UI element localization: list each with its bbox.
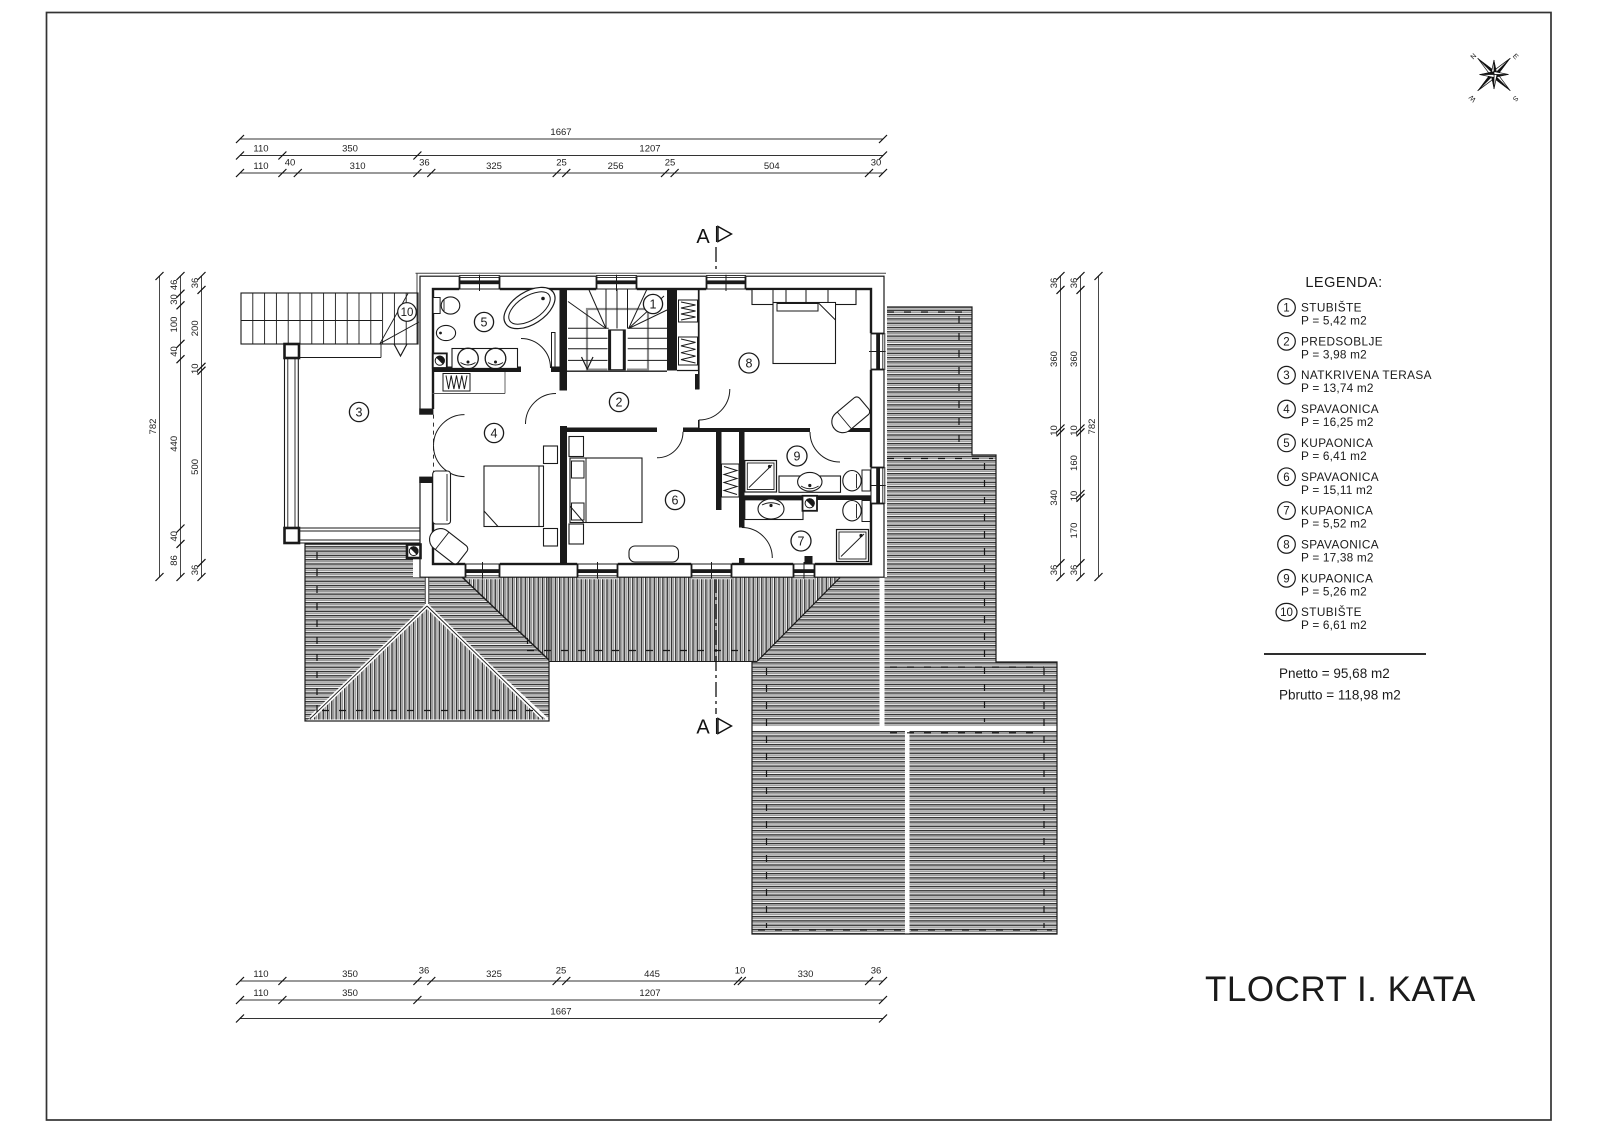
svg-text:P = 15,11 m2: P = 15,11 m2: [1301, 483, 1373, 497]
svg-text:325: 325: [486, 969, 502, 980]
svg-text:25: 25: [665, 158, 676, 169]
svg-text:360: 360: [1049, 351, 1060, 367]
svg-text:504: 504: [764, 161, 780, 172]
svg-text:STUBIŠTE: STUBIŠTE: [1301, 301, 1362, 315]
svg-text:1: 1: [1283, 303, 1289, 315]
svg-text:SPAVAONICA: SPAVAONICA: [1301, 402, 1379, 416]
svg-text:NATKRIVENA TERASA: NATKRIVENA TERASA: [1301, 368, 1432, 382]
svg-text:25: 25: [556, 158, 567, 169]
svg-text:1667: 1667: [550, 127, 571, 138]
svg-text:3: 3: [356, 405, 363, 419]
svg-text:5: 5: [481, 315, 488, 329]
svg-text:3: 3: [1283, 370, 1289, 382]
svg-text:SPAVAONICA: SPAVAONICA: [1301, 537, 1379, 551]
svg-text:350: 350: [342, 969, 358, 980]
svg-text:110: 110: [253, 161, 268, 172]
svg-text:P = 17,38 m2: P = 17,38 m2: [1301, 550, 1374, 564]
svg-text:36: 36: [190, 565, 201, 576]
svg-text:256: 256: [608, 161, 624, 172]
svg-text:7: 7: [1283, 506, 1289, 518]
svg-text:36: 36: [1069, 565, 1080, 576]
svg-text:40: 40: [285, 158, 296, 169]
svg-text:40: 40: [169, 531, 180, 542]
svg-text:PREDSOBLJE: PREDSOBLJE: [1301, 334, 1383, 348]
svg-text:KUPAONICA: KUPAONICA: [1301, 571, 1373, 585]
svg-text:310: 310: [350, 161, 366, 172]
svg-text:160: 160: [1069, 455, 1080, 471]
svg-text:350: 350: [342, 988, 358, 999]
svg-text:10: 10: [401, 307, 414, 319]
svg-text:36: 36: [1069, 278, 1080, 289]
svg-text:440: 440: [169, 436, 180, 452]
svg-text:2: 2: [1283, 336, 1289, 348]
svg-text:P = 5,26 m2: P = 5,26 m2: [1301, 584, 1367, 598]
svg-text:40: 40: [169, 346, 180, 357]
svg-text:P = 5,42 m2: P = 5,42 m2: [1301, 314, 1367, 328]
svg-text:36: 36: [1049, 565, 1060, 576]
svg-text:46: 46: [169, 280, 180, 291]
svg-text:8: 8: [1283, 539, 1289, 551]
svg-text:9: 9: [794, 449, 801, 463]
svg-text:325: 325: [486, 161, 502, 172]
svg-text:36: 36: [871, 966, 882, 977]
svg-text:445: 445: [644, 969, 660, 980]
svg-text:1667: 1667: [550, 1007, 571, 1018]
svg-text:782: 782: [148, 419, 159, 435]
svg-text:1207: 1207: [639, 988, 660, 999]
svg-text:86: 86: [169, 555, 180, 566]
svg-text:4: 4: [491, 426, 498, 440]
svg-text:P = 6,61 m2: P = 6,61 m2: [1301, 618, 1367, 632]
svg-text:KUPAONICA: KUPAONICA: [1301, 504, 1373, 518]
svg-text:6: 6: [672, 493, 679, 507]
svg-text:10: 10: [1280, 607, 1293, 619]
svg-text:30: 30: [871, 158, 882, 169]
svg-text:TLOCRT I. KATA: TLOCRT I. KATA: [1205, 970, 1476, 1009]
svg-text:8: 8: [746, 356, 753, 370]
svg-text:LEGENDA:: LEGENDA:: [1305, 275, 1382, 291]
svg-text:SPAVAONICA: SPAVAONICA: [1301, 470, 1379, 484]
svg-text:30: 30: [169, 294, 180, 305]
svg-text:P = 6,41 m2: P = 6,41 m2: [1301, 449, 1367, 463]
svg-text:36: 36: [419, 158, 430, 169]
svg-text:KUPAONICA: KUPAONICA: [1301, 436, 1373, 450]
svg-text:110: 110: [253, 144, 268, 155]
svg-text:170: 170: [1069, 523, 1080, 539]
svg-text:1207: 1207: [639, 144, 660, 155]
svg-text:36: 36: [419, 966, 430, 977]
svg-text:A: A: [696, 226, 710, 248]
svg-text:7: 7: [798, 534, 805, 548]
svg-text:4: 4: [1283, 404, 1290, 416]
svg-text:Pbrutto = 118,98 m2: Pbrutto = 118,98 m2: [1279, 688, 1401, 703]
svg-text:10: 10: [1069, 491, 1080, 502]
svg-text:P = 16,25 m2: P = 16,25 m2: [1301, 415, 1374, 429]
svg-text:2: 2: [616, 395, 623, 409]
svg-text:782: 782: [1087, 419, 1098, 435]
svg-text:500: 500: [190, 459, 201, 475]
svg-text:25: 25: [556, 966, 567, 977]
svg-text:100: 100: [169, 317, 180, 333]
svg-text:36: 36: [1049, 278, 1060, 289]
svg-text:350: 350: [342, 144, 358, 155]
svg-text:110: 110: [253, 969, 268, 980]
svg-text:200: 200: [190, 320, 201, 336]
svg-text:360: 360: [1069, 351, 1080, 367]
svg-text:340: 340: [1049, 490, 1060, 506]
svg-text:A: A: [696, 717, 710, 739]
svg-text:1: 1: [650, 297, 657, 311]
svg-text:9: 9: [1283, 573, 1289, 585]
svg-text:36: 36: [190, 278, 201, 289]
svg-text:5: 5: [1283, 438, 1289, 450]
svg-text:P = 5,52 m2: P = 5,52 m2: [1301, 517, 1367, 531]
svg-text:110: 110: [253, 988, 268, 999]
svg-text:6: 6: [1283, 472, 1289, 484]
svg-text:Pnetto = 95,68 m2: Pnetto = 95,68 m2: [1279, 666, 1390, 681]
svg-text:330: 330: [798, 969, 814, 980]
svg-text:10: 10: [1069, 425, 1080, 436]
svg-text:10: 10: [1049, 425, 1060, 436]
svg-text:10: 10: [190, 363, 201, 374]
svg-text:STUBIŠTE: STUBIŠTE: [1301, 605, 1362, 619]
svg-text:10: 10: [735, 966, 746, 977]
svg-text:P = 13,74 m2: P = 13,74 m2: [1301, 381, 1374, 395]
svg-text:P = 3,98 m2: P = 3,98 m2: [1301, 347, 1367, 361]
